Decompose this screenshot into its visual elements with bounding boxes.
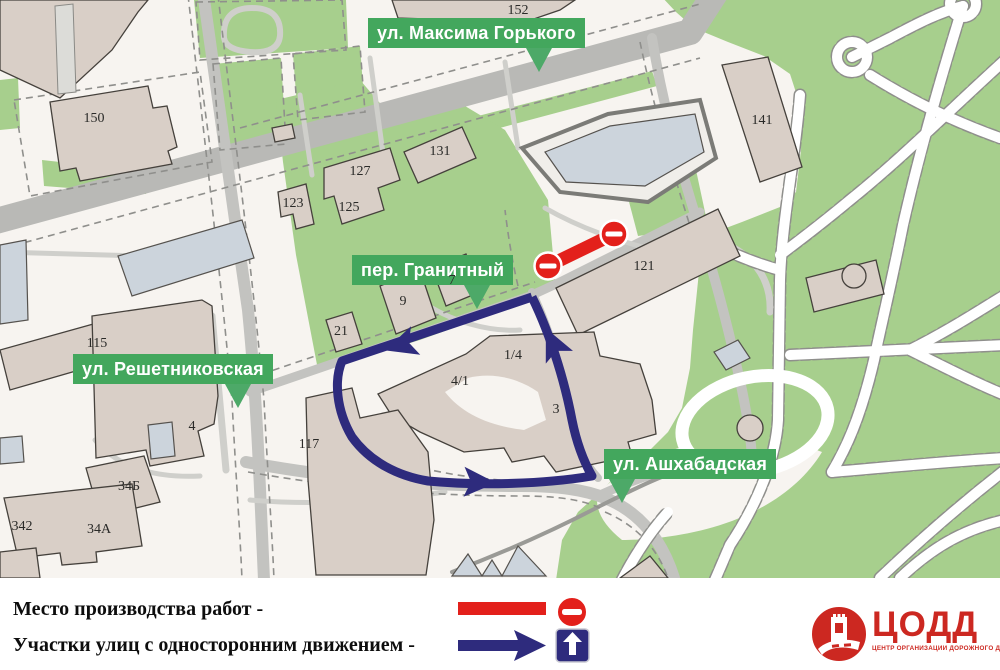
label-pointer xyxy=(609,479,635,503)
building-label: 3 xyxy=(553,403,560,417)
city-map: ул. Максима Горького пер. Гранитный ул. … xyxy=(0,0,1000,578)
stadium-circle xyxy=(737,415,763,441)
street-label-maksima-gorkogo: ул. Максима Горького xyxy=(368,18,585,48)
building-label: 127 xyxy=(350,165,371,179)
building-label: 123 xyxy=(283,197,304,211)
legend-roadworks-row: Место производства работ - xyxy=(13,598,263,621)
building-label: 115 xyxy=(87,337,107,351)
legend-roadworks-label: Место производства работ - xyxy=(13,598,263,620)
legend-oneway-row: Участки улиц с односторонним движением - xyxy=(13,634,415,657)
building-label: 4 xyxy=(189,420,196,434)
building-label: 21 xyxy=(334,325,348,339)
building-label: 7 xyxy=(449,274,456,288)
street-label-reshetnikovskaya: ул. Решетниковская xyxy=(73,354,273,384)
building-label: 4/1 xyxy=(451,375,469,389)
label-pointer xyxy=(464,285,490,309)
legend-symbols xyxy=(450,596,600,666)
street-label-text: ул. Решетниковская xyxy=(82,359,264,379)
legend-oneway-arrow xyxy=(458,630,546,661)
no-entry-sign-east xyxy=(601,221,628,248)
street-label-text: ул. Ашхабадская xyxy=(613,454,767,474)
building-150 xyxy=(50,86,177,181)
building-label: 34Б xyxy=(118,480,140,494)
traffic-scheme-poster: ул. Максима Горького пер. Гранитный ул. … xyxy=(0,0,1000,670)
logo-title: ЦОДД xyxy=(872,607,978,642)
no-entry-sign-west xyxy=(535,253,562,280)
building-label: 121 xyxy=(634,260,655,274)
building-label: 131 xyxy=(430,145,451,159)
map-canvas xyxy=(0,0,1000,578)
logo-subtitle: ЦЕНТР ОРГАНИЗАЦИИ ДОРОЖНОГО ДВИЖЕНИЯ xyxy=(872,645,1000,652)
building-label: 152 xyxy=(508,4,529,18)
building-label: 117 xyxy=(299,438,319,452)
legend-oneway-label: Участки улиц с односторонним движением - xyxy=(13,634,415,656)
building-label: 9 xyxy=(400,295,407,309)
building-small xyxy=(272,124,295,142)
building-label: 125 xyxy=(339,201,360,215)
label-pointer xyxy=(526,48,552,72)
building-label: 34А xyxy=(87,523,111,537)
street-label-ashkhabadskaya: ул. Ашхабадская xyxy=(604,449,776,479)
legend-oneway-sign-icon xyxy=(556,629,589,662)
building-label: 141 xyxy=(752,114,773,128)
codd-emblem-icon xyxy=(810,605,868,663)
legend-closure-bar xyxy=(458,602,546,615)
building-bluegray-left xyxy=(118,220,254,296)
street-label-text: ул. Максима Горького xyxy=(377,23,576,43)
building-label: 342 xyxy=(12,520,33,534)
street-label-granitny: пер. Гранитный xyxy=(352,255,513,285)
street-label-text: пер. Гранитный xyxy=(361,260,504,280)
building-label: 150 xyxy=(84,112,105,126)
building-label: 1/4 xyxy=(504,349,522,363)
label-pointer xyxy=(225,384,251,408)
codd-logo: ЦОДД ЦЕНТР ОРГАНИЗАЦИИ ДОРОЖНОГО ДВИЖЕНИ… xyxy=(810,605,990,665)
legend-no-entry-icon xyxy=(557,597,587,627)
